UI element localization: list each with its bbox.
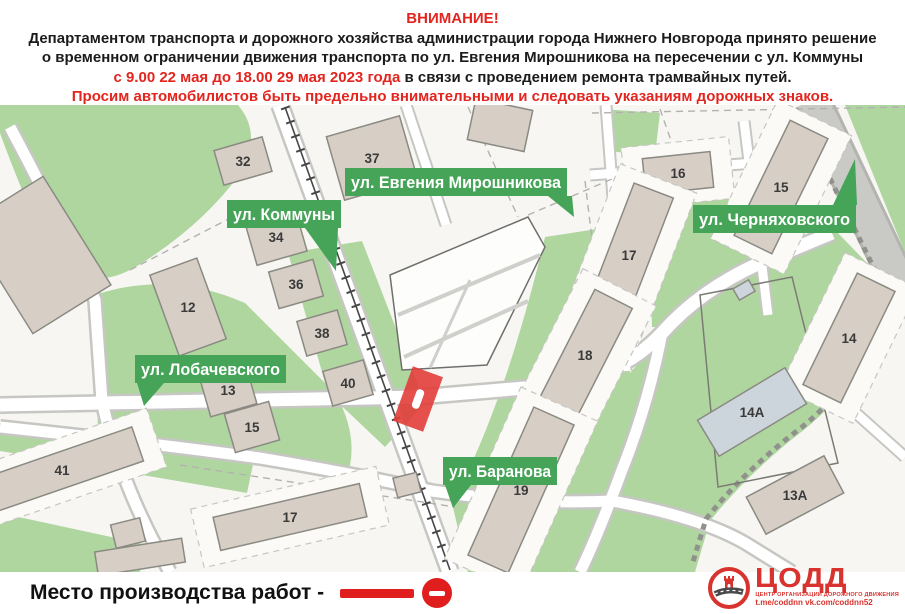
building-number: 12	[180, 300, 195, 315]
notice-line-3: о временном ограничении движения транспо…	[0, 48, 905, 68]
building-number: 16	[670, 166, 686, 181]
building-number: 34	[268, 230, 284, 245]
codd-logo-icon	[707, 565, 751, 611]
building-number: 17	[621, 248, 636, 263]
notice-title: ВНИМАНИЕ!	[0, 9, 905, 29]
page: ВНИМАНИЕ! Департаментом транспорта и дор…	[0, 0, 905, 614]
building-number: 41	[54, 463, 70, 478]
header-notice: ВНИМАНИЕ! Департаментом транспорта и дор…	[0, 0, 905, 105]
building-number: 17	[282, 510, 297, 525]
building-number: 32	[235, 154, 250, 169]
building-number: 18	[577, 348, 593, 363]
street-label-text: ул. Черняховского	[699, 211, 850, 229]
legend-label: Место производства работ -	[30, 581, 324, 605]
street-label-text: ул. Евгения Мирошникова	[351, 174, 562, 192]
codd-logo-links: t.me/coddnn vk.com/coddnn52	[755, 598, 872, 607]
codd-logo-title: ЦОДД	[755, 565, 848, 591]
street-label-text: ул. Коммуны	[233, 206, 335, 224]
notice-reason: в связи с проведением ремонта трамвайных…	[400, 69, 791, 86]
notice-dates: с 9.00 22 мая до 18.00 29 мая 2023 года	[113, 69, 400, 86]
building-number: 15	[773, 180, 789, 195]
building-number: 40	[340, 376, 355, 391]
codd-logo: ЦОДД ЦЕНТР ОРГАНИЗАЦИИ ДОРОЖНОГО ДВИЖЕНИ…	[707, 565, 899, 611]
building-number: 14А	[740, 405, 765, 420]
work-site-line-sample	[340, 589, 414, 598]
street-label-text: ул. Баранова	[449, 463, 552, 481]
building-number: 14	[841, 331, 857, 346]
building-number: 13	[220, 383, 236, 398]
no-entry-icon	[422, 578, 452, 608]
street-label-text: ул. Лобачевского	[141, 361, 280, 379]
map-canvas: 323734361238401315411716151714181914А13А…	[0, 105, 905, 572]
notice-line-2: Департаментом транспорта и дорожного хоз…	[0, 29, 905, 49]
notice-line-5: Просим автомобилистов быть предельно вни…	[0, 87, 905, 107]
map: 323734361238401315411716151714181914А13А…	[0, 105, 905, 572]
building-number: 36	[288, 277, 304, 292]
notice-line-4: с 9.00 22 мая до 18.00 29 мая 2023 года …	[0, 68, 905, 88]
building-number: 38	[314, 326, 330, 341]
building-number: 37	[364, 151, 379, 166]
building-number: 13А	[783, 488, 808, 503]
building-number: 15	[244, 420, 260, 435]
building-number: 19	[513, 483, 528, 498]
